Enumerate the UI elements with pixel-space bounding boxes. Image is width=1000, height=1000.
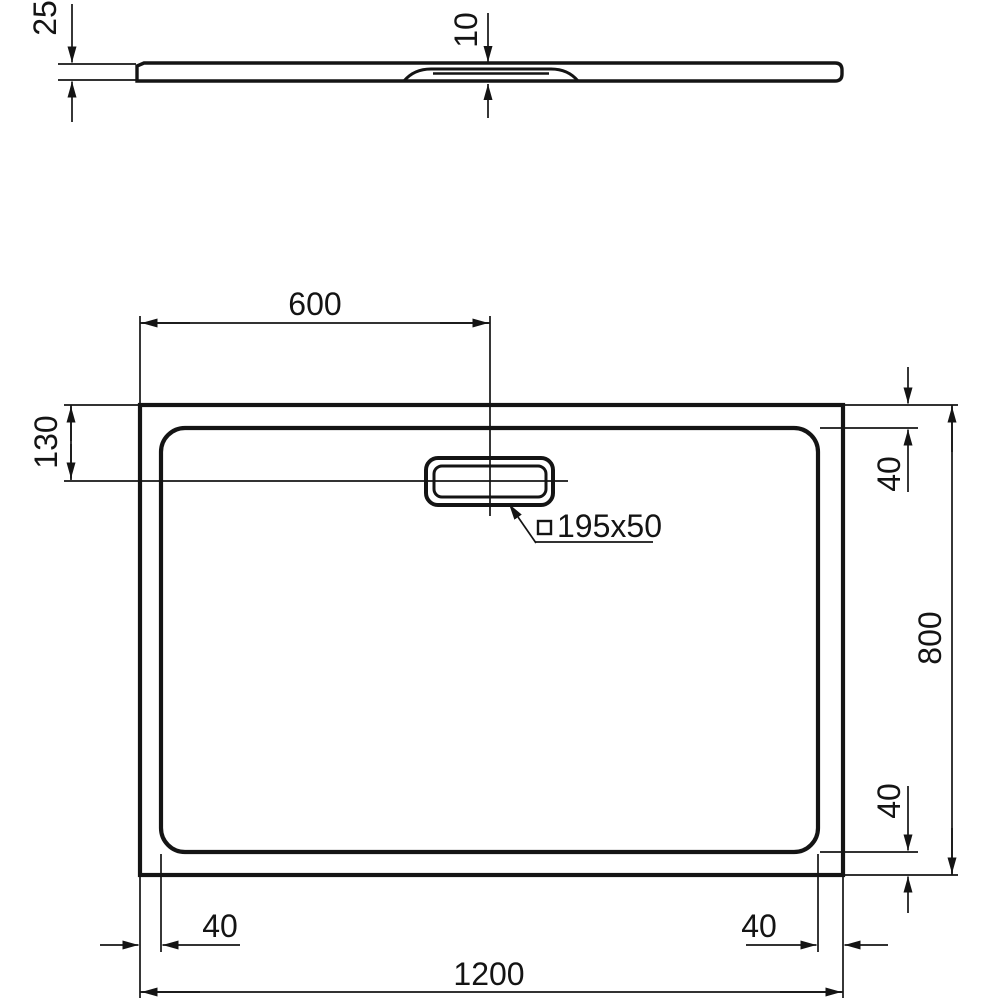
dim-1200-label: 1200 bbox=[453, 956, 524, 992]
dim-height-25: 25 bbox=[27, 0, 136, 122]
dim-600-label: 600 bbox=[288, 286, 341, 322]
waste-size-label: 195x50 bbox=[557, 508, 662, 544]
dim-40-bottom-left: 40 bbox=[100, 908, 240, 945]
dim-600: 600 bbox=[140, 286, 490, 403]
dim-40-bottom-right-side-label: 40 bbox=[871, 783, 907, 819]
dim-800-label: 800 bbox=[912, 611, 948, 664]
dim-height-25-label: 25 bbox=[27, 0, 63, 36]
dim-40-bottom-right-label: 40 bbox=[741, 908, 777, 944]
dim-40-bottom-right: 40 bbox=[741, 908, 888, 945]
tray-outer-edge bbox=[140, 405, 843, 875]
dim-40-bottom-left-label: 40 bbox=[202, 908, 238, 944]
side-profile-view: 25 10 bbox=[27, 0, 842, 122]
tray-profile-outline bbox=[137, 63, 842, 81]
technical-drawing: 25 10 195x50 6 bbox=[0, 0, 1000, 1000]
dim-40-top-right-label: 40 bbox=[871, 456, 907, 492]
plan-view: 195x50 600 130 40 bbox=[28, 286, 958, 998]
dim-130: 130 bbox=[28, 405, 138, 480]
dim-1200: 1200 bbox=[140, 956, 843, 992]
drawing-sheet: 25 10 195x50 6 bbox=[0, 0, 1000, 1000]
dim-recess-10-label: 10 bbox=[448, 12, 484, 48]
dim-130-label: 130 bbox=[28, 415, 64, 468]
